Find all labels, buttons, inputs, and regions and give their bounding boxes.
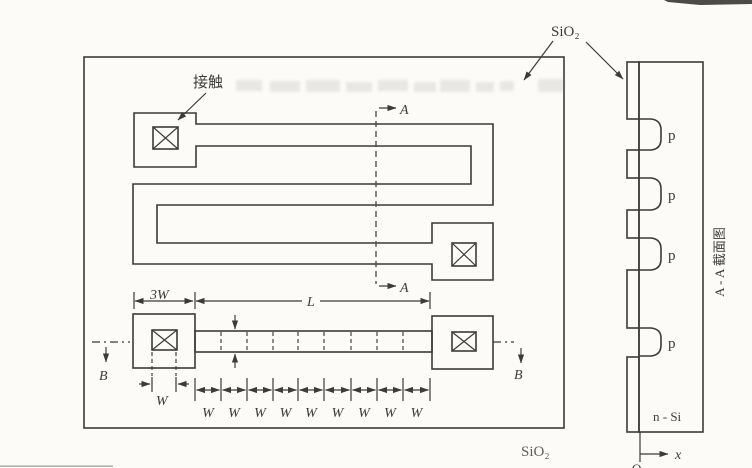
x-axis: x O xyxy=(632,432,682,468)
figure-canvas: 接触 A A xyxy=(0,0,752,468)
scan-artifact-bottom-left xyxy=(0,465,113,467)
dim-3w-label: 3W xyxy=(149,288,170,303)
oxide-segments xyxy=(627,62,639,432)
print-bleed-artifact xyxy=(236,79,564,92)
scan-artifact-top-right xyxy=(664,0,752,5)
w-chain-label: W xyxy=(254,406,267,421)
contact-leader-arrow xyxy=(178,93,206,120)
section-marker-b-left: B xyxy=(92,342,130,384)
w-chain-label: W xyxy=(305,406,318,421)
sio2-callout: SiO₂ xyxy=(524,24,623,80)
section-line-a: A A xyxy=(376,103,409,296)
dimension-w: W xyxy=(139,352,189,409)
w-chain-dimensions: WWWWWWWWW xyxy=(195,378,430,421)
w-chain-label: W xyxy=(384,406,397,421)
section-b-label-left: B xyxy=(99,369,108,384)
sio2-top-label: SiO₂ xyxy=(551,24,580,40)
w-chain-label: W xyxy=(228,406,241,421)
silicon-body xyxy=(639,62,703,432)
serpentine-resistor xyxy=(133,113,493,280)
dim-w-label: W xyxy=(156,394,169,409)
p-diffusions xyxy=(639,119,661,356)
contact-window-2 xyxy=(452,243,476,266)
p-label-4: p xyxy=(668,336,676,352)
p-label-2: p xyxy=(668,188,676,204)
bar-resistor xyxy=(133,314,493,369)
figure-root: 接触 A A xyxy=(0,0,752,468)
p-label-3: p xyxy=(668,248,676,264)
sio2-bottom-label: SiO₂ xyxy=(521,444,550,460)
cross-section-title: A - A 截面图 xyxy=(712,227,727,297)
dimension-3w: 3W xyxy=(134,288,195,309)
w-chain-label: W xyxy=(332,406,345,421)
contact-window-3 xyxy=(152,330,177,350)
origin-label: O xyxy=(632,461,641,468)
dimension-l: L xyxy=(196,292,430,310)
sio2-leader-arrow-right xyxy=(586,42,623,79)
w-chain-label: W xyxy=(411,406,424,421)
sio2-leader-arrow-left xyxy=(524,41,553,80)
section-b-label-right: B xyxy=(514,368,523,383)
contact-label: 接触 xyxy=(193,74,223,91)
substrate-label: n - Si xyxy=(653,409,682,424)
x-axis-label: x xyxy=(674,448,682,463)
bar-body xyxy=(195,331,432,352)
section-a-label-top: A xyxy=(399,103,409,118)
w-chain-label: W xyxy=(280,406,293,421)
w-chain-label: W xyxy=(202,406,215,421)
w-chain-label: W xyxy=(358,406,371,421)
bar-segment-dividers xyxy=(221,332,403,351)
contact-window-4 xyxy=(452,332,476,351)
cross-section-view: p p p p n - Si x O A - A 截面图 xyxy=(627,62,727,468)
section-marker-b-right: B xyxy=(493,342,523,383)
dim-l-label: L xyxy=(306,295,315,310)
section-a-label-bottom: A xyxy=(399,281,409,296)
contact-window-1 xyxy=(153,127,178,149)
p-label-1: p xyxy=(668,128,676,144)
top-view: 接触 A A xyxy=(84,57,564,460)
